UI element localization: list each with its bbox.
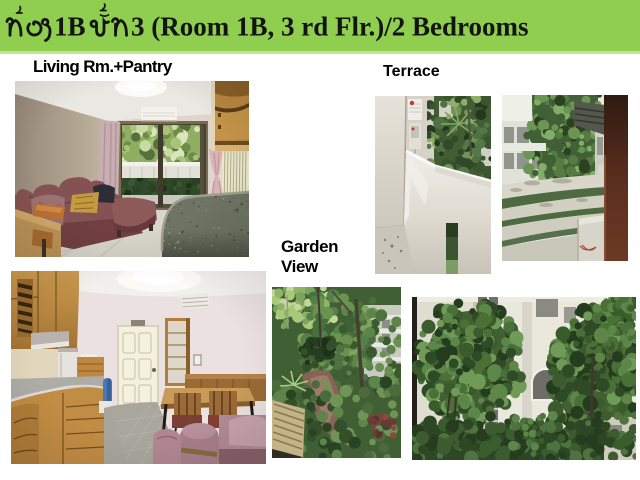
svg-text:1B: 1B — [54, 12, 86, 42]
svg-text:3 (Room 1B, 3 rd Flr.)/2 Bedro: 3 (Room 1B, 3 rd Flr.)/2 Bedrooms — [131, 12, 529, 42]
